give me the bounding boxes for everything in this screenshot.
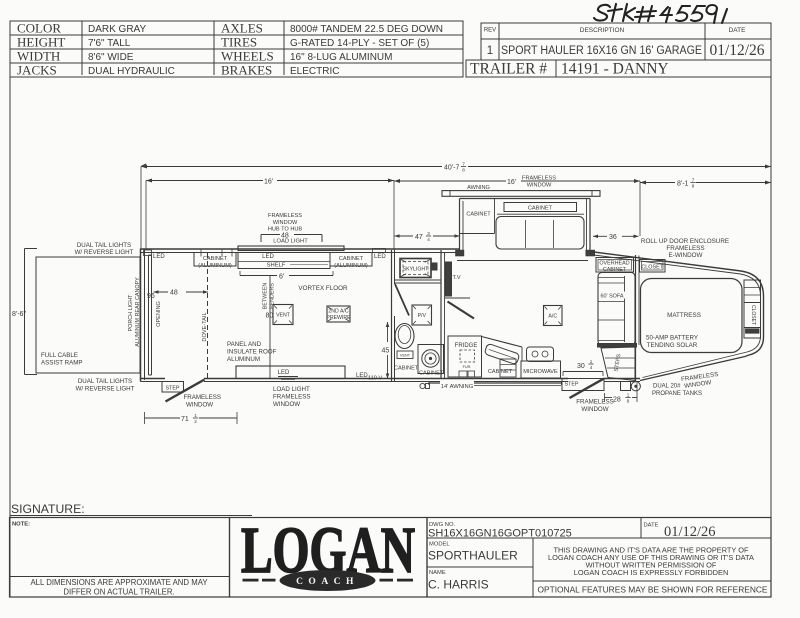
svg-text:WINDOW: WINDOW: [581, 406, 608, 413]
svg-text:PORCH LIGHT: PORCH LIGHT: [128, 294, 134, 332]
svg-text:16': 16': [507, 179, 516, 186]
svg-text:CABINET: CABINET: [603, 267, 627, 273]
svg-text:P/V: P/V: [418, 313, 427, 319]
svg-text:WINDOW: WINDOW: [273, 220, 298, 226]
svg-text:LOGAN COACH IS EXPRESSLY FORBI: LOGAN COACH IS EXPRESSLY FORBIDDEN: [574, 568, 729, 577]
svg-text:PREWIRE: PREWIRE: [326, 315, 351, 321]
svg-text:FULL CABLE: FULL CABLE: [41, 352, 78, 359]
svg-text:LED: LED: [356, 373, 368, 379]
svg-text:AXLES: AXLES: [221, 21, 263, 36]
svg-text:45: 45: [382, 348, 390, 355]
svg-text:W/ REVERSE LIGHT: W/ REVERSE LIGHT: [75, 249, 134, 256]
svg-text:CABINET: CABINET: [466, 212, 491, 218]
svg-text:PANEL AND: PANEL AND: [227, 341, 262, 348]
svg-text:STEPS: STEPS: [614, 353, 623, 372]
svg-text:CABINET: CABINET: [488, 369, 513, 375]
svg-text:MICROWAVE: MICROWAVE: [523, 369, 558, 375]
svg-text:CABINET: CABINET: [339, 256, 364, 262]
svg-text:SIGNATURE:: SIGNATURE:: [11, 502, 85, 516]
svg-text:CABINET: CABINET: [528, 206, 553, 212]
svg-text:G-RATED 14-PLY - SET OF (5): G-RATED 14-PLY - SET OF (5): [290, 38, 429, 49]
svg-text:DOVE-TAIL: DOVE-TAIL: [202, 312, 208, 341]
svg-text:DESCRIPTION: DESCRIPTION: [580, 27, 625, 34]
svg-text:SKYLIGHT: SKYLIGHT: [403, 267, 429, 273]
svg-text:ROLL UP DOOR ENCLOSURE: ROLL UP DOOR ENCLOSURE: [641, 238, 729, 245]
svg-text:ALUMINUM: ALUMINUM: [227, 356, 260, 363]
svg-text:FRAMELESS: FRAMELESS: [273, 394, 310, 401]
svg-text:ASSIST RAMP: ASSIST RAMP: [41, 360, 83, 367]
svg-text:60' SOFA: 60' SOFA: [601, 294, 624, 300]
svg-text:7'6" TALL: 7'6" TALL: [88, 38, 131, 49]
svg-text:36: 36: [609, 234, 617, 241]
svg-text:C. HARRIS: C. HARRIS: [428, 578, 489, 592]
svg-text:01/12/26: 01/12/26: [664, 524, 716, 540]
svg-text:PROPANE TANKS: PROPANE TANKS: [652, 391, 702, 397]
svg-text:96: 96: [147, 293, 155, 300]
svg-text:VENT: VENT: [400, 354, 411, 358]
svg-text:DUAL TAIL LIGHTS: DUAL TAIL LIGHTS: [77, 242, 131, 249]
svg-text:SHELF: SHELF: [267, 263, 286, 269]
svg-text:DUAL HYDRAULIC: DUAL HYDRAULIC: [88, 66, 175, 77]
svg-text:OPTIONAL FEATURES MAY BE SHOWN: OPTIONAL FEATURES MAY BE SHOWN FOR REFER…: [537, 585, 767, 595]
svg-text:SPORT HAULER 16X16 GN 16' GARA: SPORT HAULER 16X16 GN 16' GARAGE: [501, 43, 702, 57]
svg-text:DUAL 20#: DUAL 20#: [653, 384, 681, 390]
svg-text:STEP: STEP: [165, 386, 179, 392]
svg-text:DARK GRAY: DARK GRAY: [88, 24, 146, 35]
svg-text:COLOR: COLOR: [17, 21, 61, 36]
svg-text:LED: LED: [262, 254, 274, 260]
svg-text:TRAILER #: TRAILER #: [470, 61, 547, 78]
svg-text:ELECTRIC: ELECTRIC: [290, 66, 339, 77]
svg-text:FRAMELESS: FRAMELESS: [184, 394, 221, 401]
svg-text:COACH: COACH: [296, 577, 359, 587]
svg-text:OPENING: OPENING: [156, 301, 162, 327]
svg-text:WINDOW: WINDOW: [186, 402, 213, 409]
svg-text:CABINET: CABINET: [419, 371, 444, 377]
svg-text:DIFFER ON ACTUAL TRAILER.: DIFFER ON ACTUAL TRAILER.: [63, 588, 174, 597]
svg-text:OVERHEAD: OVERHEAD: [599, 261, 629, 267]
svg-text:2ND A/C: 2ND A/C: [328, 309, 348, 315]
svg-text:48: 48: [170, 290, 178, 297]
svg-text:16': 16': [264, 179, 273, 186]
svg-text:71: 71: [181, 416, 189, 423]
svg-text:INSULATE ROOF: INSULATE ROOF: [227, 349, 277, 356]
svg-text:CLOSET: CLOSET: [750, 305, 756, 325]
svg-text:1: 1: [590, 359, 593, 364]
svg-text:8000# TANDEM 22.5 DEG DOWN: 8000# TANDEM 22.5 DEG DOWN: [290, 24, 443, 35]
svg-text:LED: LED: [374, 254, 386, 260]
svg-text:MATTRESS: MATTRESS: [667, 312, 701, 319]
svg-text:CABINET: CABINET: [203, 256, 228, 262]
svg-text:1: 1: [194, 413, 197, 418]
svg-text:50-AMP BATTERY: 50-AMP BATTERY: [646, 335, 698, 342]
svg-text:3: 3: [427, 231, 430, 236]
svg-text:WINDOW: WINDOW: [527, 183, 552, 189]
svg-text:8'6" WIDE: 8'6" WIDE: [88, 52, 134, 63]
svg-text:DUAL TAIL LIGHTS: DUAL TAIL LIGHTS: [78, 378, 132, 385]
svg-text:LOAD LIGHT: LOAD LIGHT: [273, 386, 310, 393]
svg-text:14191 - DANNY: 14191 - DANNY: [561, 61, 669, 78]
svg-text:FRAMELESS: FRAMELESS: [268, 213, 302, 219]
svg-text:40'-7: 40'-7: [444, 165, 459, 172]
svg-text:WHEELS: WHEELS: [221, 49, 274, 64]
svg-text:ALL DIMENSIONS ARE APPROXIMATE: ALL DIMENSIONS ARE APPROXIMATE AND MAY: [30, 578, 208, 587]
svg-text:30: 30: [577, 363, 585, 370]
svg-text:(ALUMINUM): (ALUMINUM): [334, 263, 368, 269]
svg-text:E-WINDOW: E-WINDOW: [669, 252, 703, 259]
svg-text:8: 8: [627, 399, 630, 404]
svg-text:6': 6': [279, 274, 284, 281]
svg-text:7: 7: [692, 177, 695, 182]
svg-text:T.V: T.V: [453, 275, 461, 281]
svg-text:4: 4: [590, 365, 593, 370]
svg-text:W/ REVERSE LIGHT: W/ REVERSE LIGHT: [76, 386, 135, 393]
svg-text:FRAMELESS: FRAMELESS: [576, 399, 613, 406]
svg-text:HEIGHT: HEIGHT: [17, 35, 65, 50]
svg-text:WIDTH: WIDTH: [17, 49, 60, 64]
svg-text:VENT: VENT: [276, 313, 291, 319]
svg-text:REV: REV: [484, 28, 496, 34]
svg-text:NAME: NAME: [429, 570, 446, 576]
svg-text:28: 28: [613, 397, 621, 404]
svg-text:DATE: DATE: [644, 523, 659, 529]
svg-text:01/12/26: 01/12/26: [709, 42, 764, 59]
svg-text:16" 8-LUG ALUMINUM: 16" 8-LUG ALUMINUM: [290, 52, 392, 63]
svg-text:FUR.: FUR.: [463, 365, 472, 369]
svg-text:4: 4: [427, 237, 430, 242]
svg-text:8'-6": 8'-6": [12, 311, 26, 318]
svg-text:BETWEEN: BETWEEN: [263, 283, 269, 310]
svg-text:TENDING SOLAR: TENDING SOLAR: [647, 342, 698, 349]
svg-text:NOTE:: NOTE:: [12, 522, 30, 528]
svg-text:7: 7: [462, 161, 465, 166]
svg-text:STEP: STEP: [564, 382, 578, 388]
svg-text:8: 8: [462, 168, 465, 173]
svg-text:47: 47: [415, 234, 423, 241]
svg-text:WINDOW: WINDOW: [273, 401, 300, 408]
svg-text:14' AWNING: 14' AWNING: [441, 384, 474, 390]
svg-text:(ALUMINUM): (ALUMINUM): [198, 263, 232, 269]
svg-text:FRAMELESS: FRAMELESS: [522, 176, 556, 182]
svg-text:JACKS: JACKS: [17, 63, 57, 78]
svg-text:ALUMINUM REAR CANOPY: ALUMINUM REAR CANOPY: [135, 277, 141, 347]
svg-text:8'-1: 8'-1: [677, 181, 689, 188]
svg-text:2: 2: [194, 419, 197, 424]
svg-text:1: 1: [487, 45, 493, 57]
svg-text:BRAKES: BRAKES: [221, 63, 272, 78]
svg-text:TIRES: TIRES: [221, 35, 257, 50]
svg-text:VORTEX FLOOR: VORTEX FLOOR: [298, 285, 348, 292]
svg-text:LED: LED: [153, 254, 165, 260]
svg-text:LED: LED: [278, 370, 290, 376]
svg-text:LOAD LIGHT: LOAD LIGHT: [273, 239, 308, 245]
svg-text:8: 8: [692, 184, 695, 189]
svg-text:SH16X16GN16GOPT010725: SH16X16GN16GOPT010725: [428, 528, 572, 540]
svg-text:80: 80: [266, 313, 274, 320]
svg-text:A/C: A/C: [548, 314, 557, 320]
svg-text:SPORTHAULER: SPORTHAULER: [428, 549, 518, 563]
svg-text:1: 1: [627, 392, 630, 397]
svg-text:CABINET: CABINET: [394, 366, 419, 372]
svg-text:FRIDGE: FRIDGE: [455, 343, 478, 349]
svg-text:110 V: 110 V: [368, 376, 382, 382]
svg-text:CLOSET: CLOSET: [641, 265, 663, 271]
svg-text:DATE: DATE: [729, 27, 747, 34]
svg-text:MODEL: MODEL: [429, 542, 450, 548]
svg-text:AWNING: AWNING: [467, 185, 490, 191]
